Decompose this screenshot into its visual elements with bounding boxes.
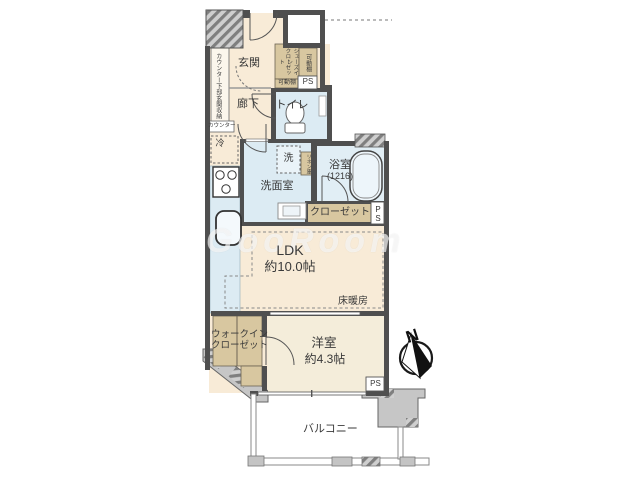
label-counter-storage: カウンター下部玄関収納: [214, 51, 221, 121]
label-ps-right-p: P: [375, 205, 380, 214]
label-shoes-closet-line2: クローゼット: [278, 46, 290, 78]
label-floor-heating: 床暖房: [334, 296, 372, 307]
label-ps-bottom: PS: [368, 380, 383, 389]
label-ldk: LDK: [262, 243, 318, 259]
label-washer: 洗: [281, 153, 296, 164]
label-balcony: バルコニー: [303, 423, 355, 435]
label-ps-right: P S: [372, 203, 384, 224]
label-wic-line2: クローゼット: [211, 341, 265, 352]
label-ps-top: PS: [300, 78, 316, 87]
label-movable-shelf-vertical: 可動棚: [304, 51, 311, 75]
label-entrance: 玄関: [233, 57, 265, 69]
label-ps-right-s: S: [375, 214, 380, 223]
label-hallway: 廊下: [232, 98, 264, 110]
label-ldk-size: 約10.0帖: [255, 260, 325, 275]
label-fridge: 冷: [213, 138, 227, 148]
label-movable-shelf-horizontal: 可動棚: [276, 80, 298, 87]
label-western-room: 洋室: [304, 336, 344, 350]
stove-icon: [213, 167, 239, 197]
floorplan: GooRoom 玄関 廊下 トイレ 洗面室 浴室 (1216) クローゼット L…: [0, 0, 640, 480]
label-toilet: トイレ: [274, 99, 310, 111]
label-counter: カウンター: [208, 123, 234, 129]
label-linen: リネン庫: [305, 153, 311, 175]
label-bath-size: (1216): [316, 171, 364, 181]
label-washroom: 洗面室: [254, 180, 300, 192]
washroom-sliding-door: [246, 139, 268, 142]
vanity-icon: [278, 203, 306, 219]
label-bath: 浴室: [322, 159, 358, 171]
label-western-room-size: 約4.3帖: [298, 353, 352, 366]
label-closet: クローゼット: [310, 207, 368, 218]
